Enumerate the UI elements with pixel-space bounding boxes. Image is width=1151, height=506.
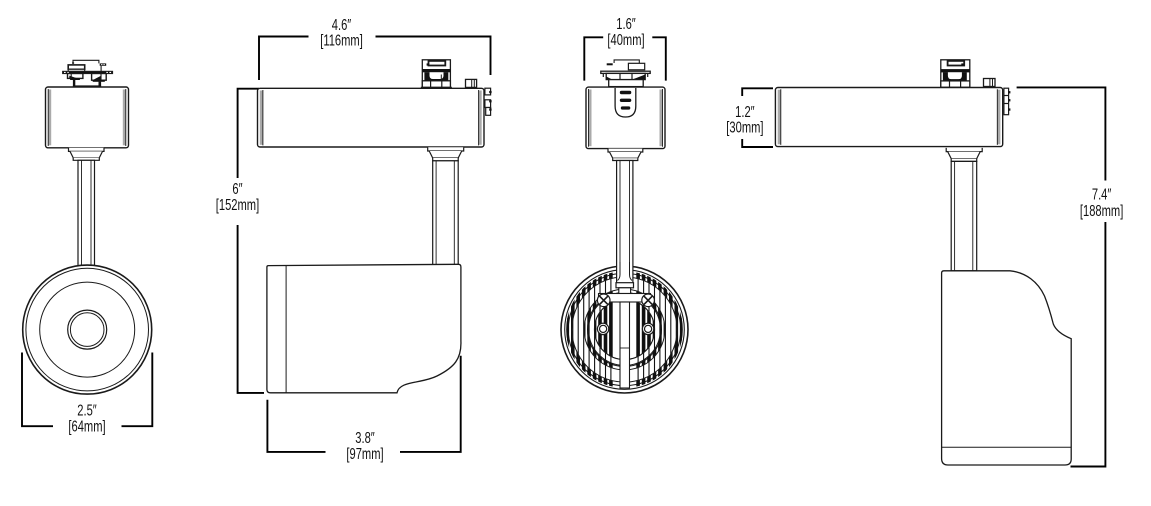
svg-text:2.5″: 2.5″ [77,402,97,419]
svg-text:[116mm]: [116mm] [320,32,363,49]
svg-text:3.8″: 3.8″ [355,429,375,446]
svg-text:[97mm]: [97mm] [346,445,383,462]
svg-text:4.6″: 4.6″ [332,16,352,33]
svg-text:[64mm]: [64mm] [68,418,105,435]
svg-text:[188mm]: [188mm] [1080,202,1123,219]
svg-text:[40mm]: [40mm] [607,31,644,48]
svg-text:1.2″: 1.2″ [735,103,755,120]
svg-text:[152mm]: [152mm] [216,196,259,213]
svg-text:1.6″: 1.6″ [616,15,636,32]
svg-text:7.4″: 7.4″ [1092,186,1112,203]
svg-text:[30mm]: [30mm] [726,119,763,136]
svg-text:6″: 6″ [232,180,242,197]
